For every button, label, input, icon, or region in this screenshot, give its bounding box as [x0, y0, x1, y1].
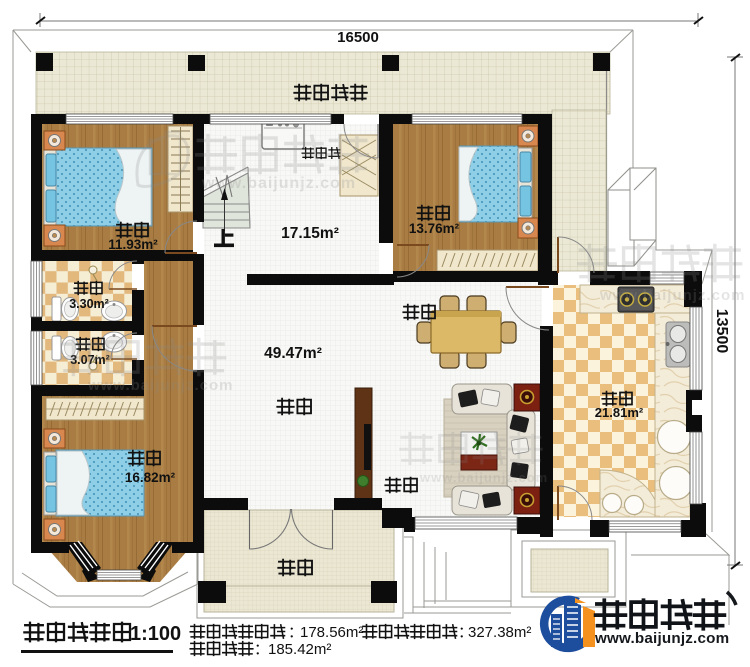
svg-text:327.38m²: 327.38m² [468, 624, 531, 641]
svg-text:www.baijunjz.com: www.baijunjz.com [419, 470, 548, 485]
svg-text:11.93m²: 11.93m² [108, 237, 158, 252]
svg-text:www.baijunjz.com: www.baijunjz.com [87, 377, 233, 394]
svg-text:185.42m²: 185.42m² [268, 641, 331, 658]
svg-text:13500: 13500 [713, 309, 730, 354]
svg-text:www.baijunjz.com: www.baijunjz.com [201, 175, 356, 192]
svg-text:21.81m²: 21.81m² [595, 405, 644, 420]
svg-text:13.76m²: 13.76m² [409, 221, 460, 236]
svg-text:17.15m²: 17.15m² [281, 225, 339, 242]
svg-text:16500: 16500 [337, 29, 379, 46]
svg-text:www.baijunjz.com: www.baijunjz.com [594, 630, 729, 647]
svg-text:1:100: 1:100 [130, 623, 181, 645]
svg-text:49.47m²: 49.47m² [264, 345, 322, 362]
svg-text:：: ： [254, 641, 269, 658]
svg-text:3.30m²: 3.30m² [69, 297, 109, 311]
svg-text:16.82m²: 16.82m² [125, 470, 176, 485]
svg-text:www.baijunjz.com: www.baijunjz.com [599, 287, 745, 304]
svg-text:178.56m²: 178.56m² [300, 624, 363, 641]
